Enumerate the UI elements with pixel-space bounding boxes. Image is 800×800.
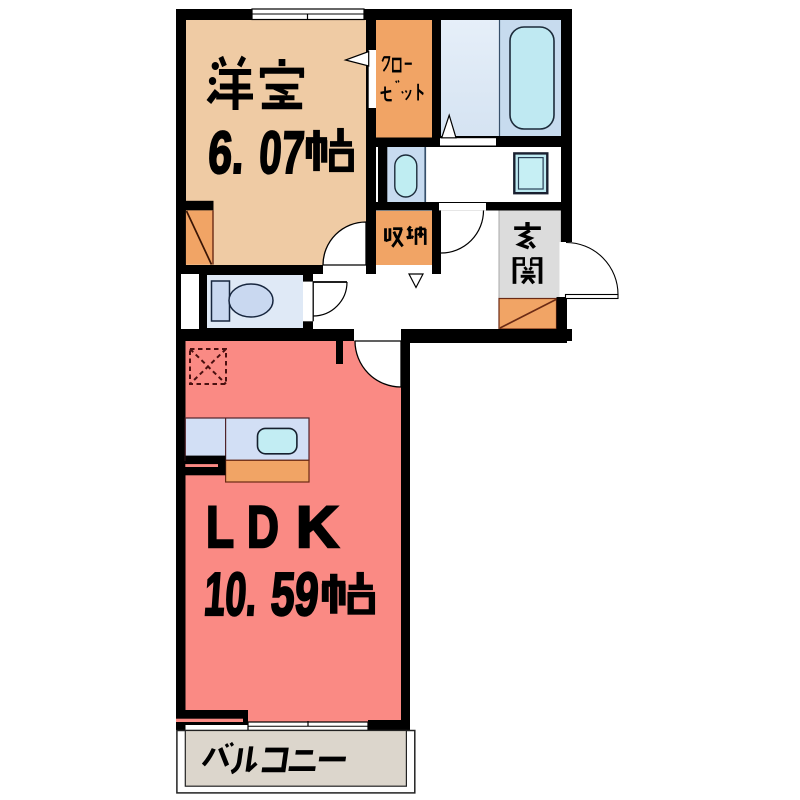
svg-text:D: D [247, 494, 279, 559]
svg-text:10.: 10. [202, 560, 259, 628]
svg-text:07: 07 [257, 119, 306, 186]
svg-text:K: K [296, 496, 339, 560]
svg-text:59: 59 [269, 561, 321, 629]
svg-text:L: L [206, 496, 234, 560]
svg-text:6.: 6. [206, 120, 247, 186]
